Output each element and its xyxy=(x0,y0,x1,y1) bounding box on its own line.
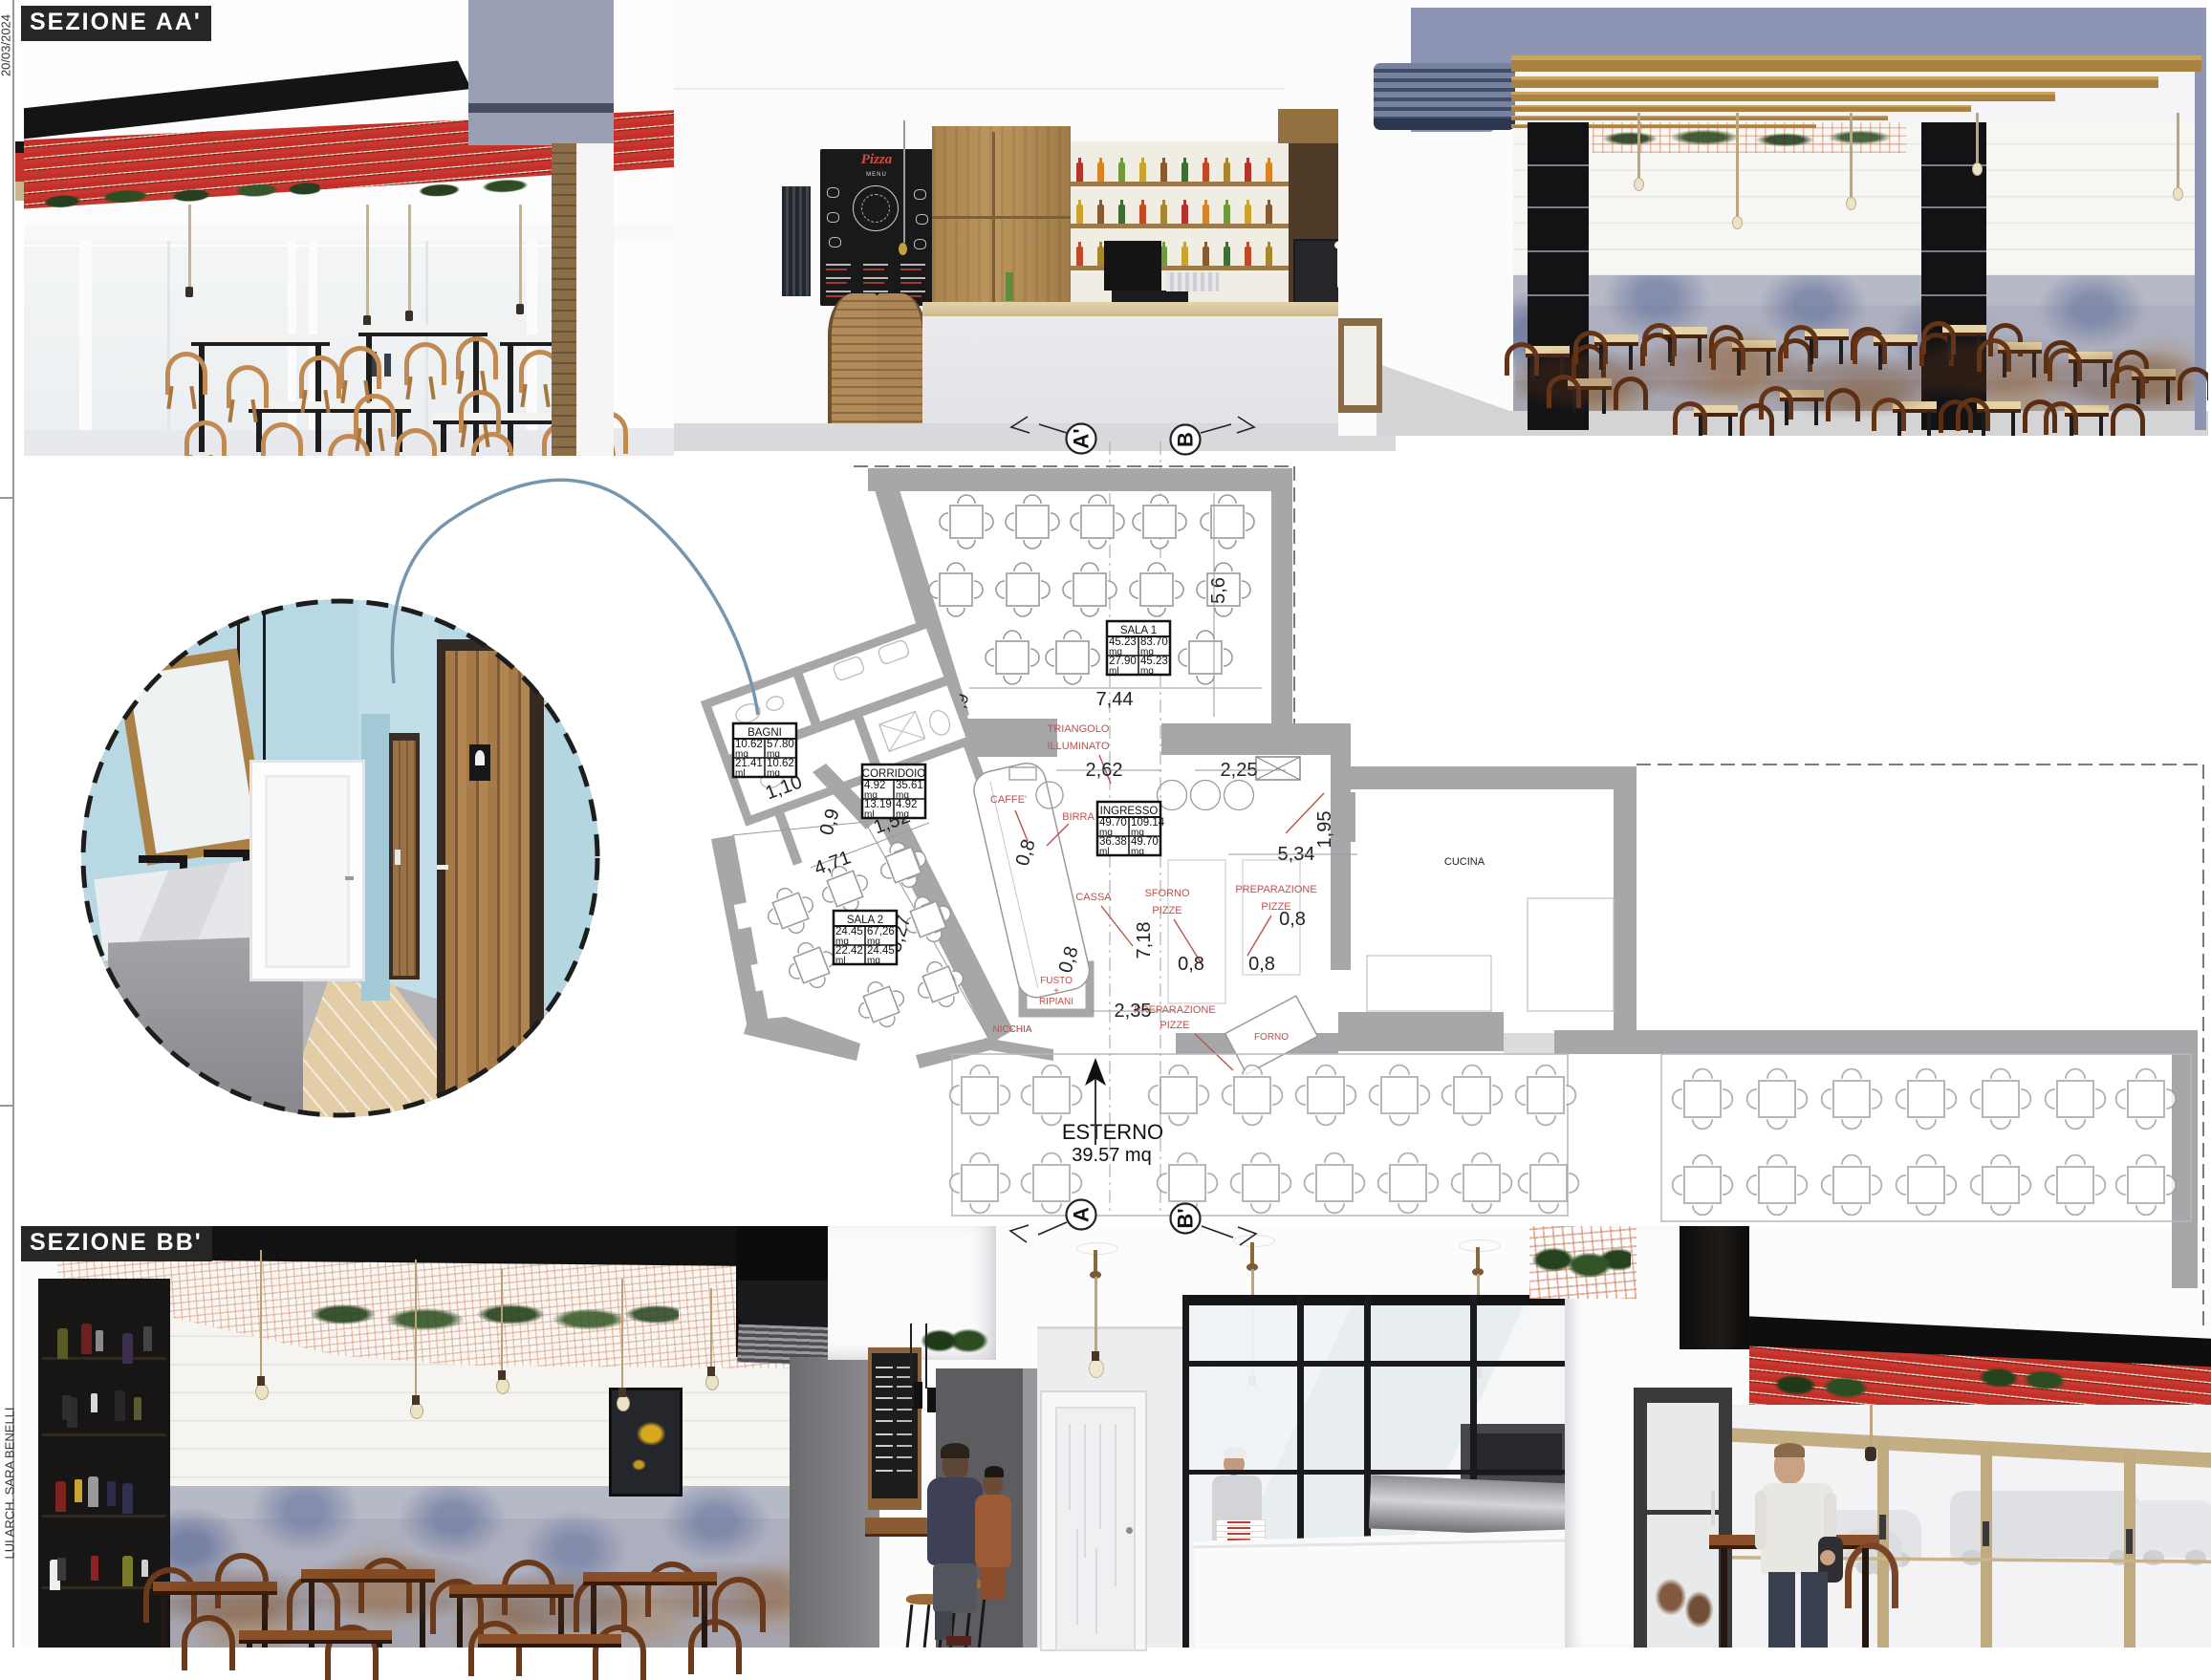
svg-text:ESTERNO: ESTERNO xyxy=(1062,1120,1163,1144)
svg-text:ml: ml xyxy=(1109,666,1119,677)
svg-text:B': B' xyxy=(1174,1208,1198,1228)
svg-text:0,8: 0,8 xyxy=(1178,954,1204,975)
svg-text:PIZZE: PIZZE xyxy=(1152,905,1181,916)
svg-text:5,6: 5,6 xyxy=(1208,577,1229,604)
svg-text:SALA 1: SALA 1 xyxy=(1120,625,1157,636)
svg-text:mq: mq xyxy=(1140,666,1154,677)
svg-text:PREPARAZIONE: PREPARAZIONE xyxy=(1235,884,1316,895)
svg-text:mq: mq xyxy=(867,956,880,966)
svg-text:0,8: 0,8 xyxy=(1248,954,1275,975)
svg-text:mq: mq xyxy=(896,809,909,820)
svg-text:ml: ml xyxy=(735,768,746,779)
svg-text:A: A xyxy=(1070,1207,1094,1222)
svg-text:7,44: 7,44 xyxy=(1096,689,1134,710)
svg-text:+: + xyxy=(1053,986,1059,997)
svg-text:SALA 2: SALA 2 xyxy=(847,915,883,926)
svg-text:TRIANGOLO: TRIANGOLO xyxy=(1048,723,1110,735)
svg-text:1,95: 1,95 xyxy=(1314,811,1335,849)
svg-text:CORRIDOIO: CORRIDOIO xyxy=(862,768,926,780)
svg-text:ml: ml xyxy=(1099,847,1110,857)
svg-text:PIZZE: PIZZE xyxy=(1160,1020,1189,1031)
svg-text:CASSA: CASSA xyxy=(1075,892,1112,903)
svg-text:CAFFE': CAFFE' xyxy=(990,794,1027,806)
svg-text:ILLUMINATO: ILLUMINATO xyxy=(1048,741,1110,752)
svg-text:FUSTO: FUSTO xyxy=(1040,976,1073,986)
svg-text:SFORNO: SFORNO xyxy=(1144,888,1190,899)
svg-text:CUCINA: CUCINA xyxy=(1444,856,1485,868)
svg-text:RIPIANI: RIPIANI xyxy=(1039,997,1073,1007)
svg-text:BAGNI: BAGNI xyxy=(748,727,782,739)
svg-text:39.57 mq: 39.57 mq xyxy=(1072,1145,1151,1166)
svg-text:A': A' xyxy=(1070,428,1094,448)
svg-text:mq: mq xyxy=(1131,847,1144,857)
svg-text:7,18: 7,18 xyxy=(1134,922,1155,959)
svg-text:NICCHIA: NICCHIA xyxy=(992,1024,1031,1035)
svg-text:ml: ml xyxy=(864,809,875,820)
svg-text:INGRESSO: INGRESSO xyxy=(1100,806,1159,817)
svg-text:0,9: 0,9 xyxy=(816,807,844,838)
svg-text:BIRRA: BIRRA xyxy=(1062,811,1095,823)
svg-text:0,8: 0,8 xyxy=(1279,909,1306,930)
svg-text:mq: mq xyxy=(767,768,780,779)
svg-text:FORNO: FORNO xyxy=(1254,1032,1289,1043)
svg-text:B: B xyxy=(1174,432,1198,447)
svg-text:ml: ml xyxy=(835,956,846,966)
